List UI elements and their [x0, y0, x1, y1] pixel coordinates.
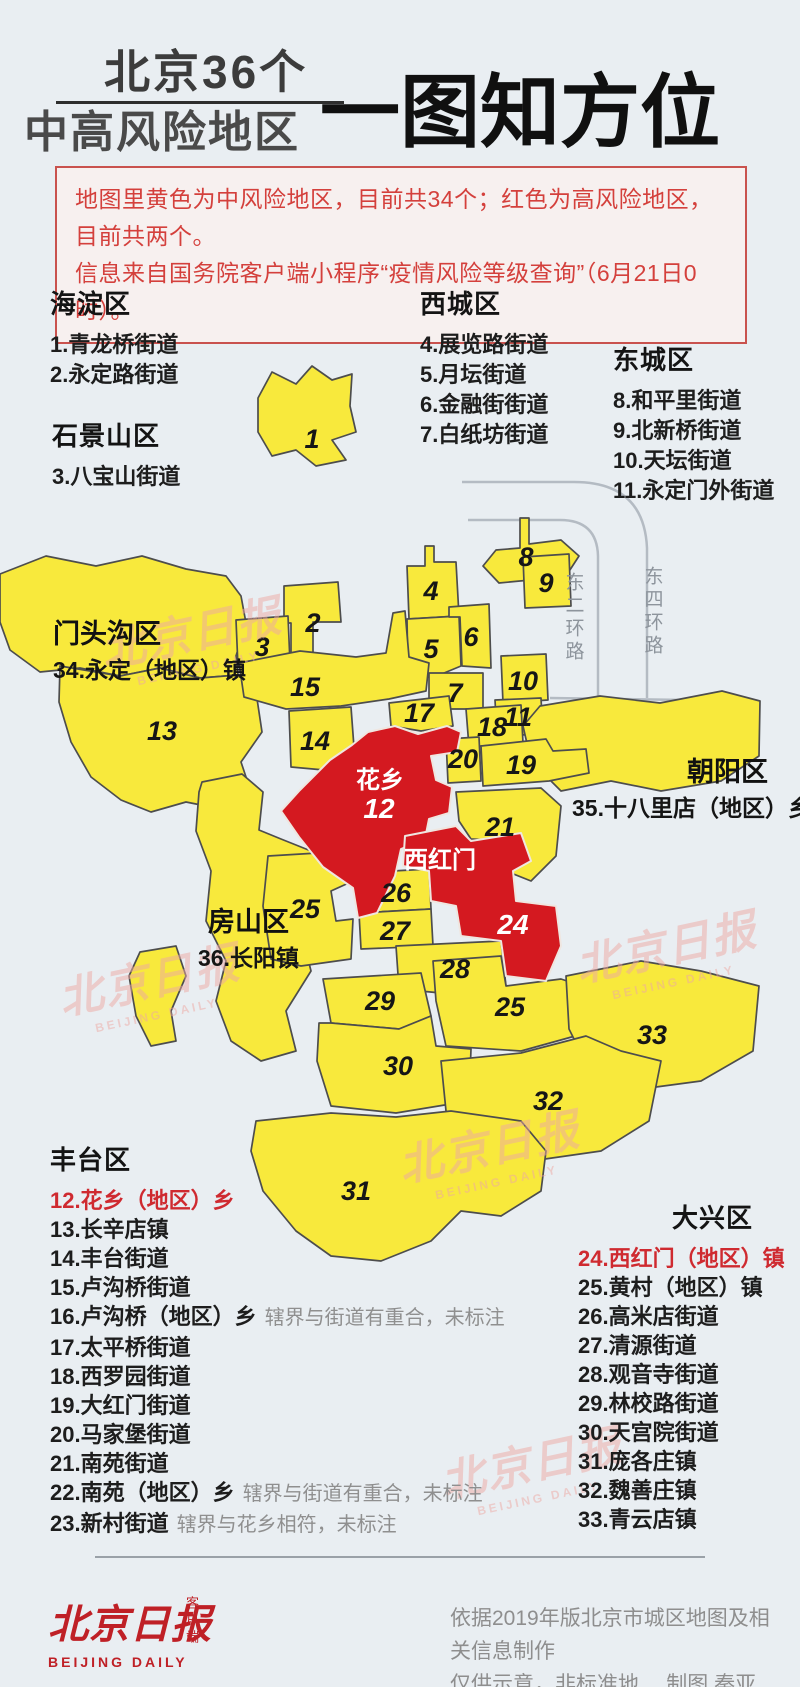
legend-item: 25.黄村（地区）镇 — [578, 1273, 785, 1302]
fangshan-item: 36.长阳镇 — [198, 939, 299, 973]
legend-item: 8.和平里街道 — [613, 386, 774, 416]
map-label-30: 30 — [383, 1051, 413, 1081]
legend-item-note: 辖界与花乡相符，未标注 — [177, 1514, 397, 1536]
legend-item: 5.月坛街道 — [420, 360, 548, 390]
map-label-15: 15 — [290, 672, 321, 702]
map-label-5: 5 — [423, 634, 439, 664]
legend-item: 19.大红门街道 — [50, 1391, 505, 1420]
road-label-east-2nd-ring: 东二环路 — [563, 572, 585, 664]
legend-item-note: 辖界与街道有重合，未标注 — [265, 1307, 505, 1329]
legend-xicheng: 西城区 4.展览路街道5.月坛街道6.金融街街道7.白纸坊街道 — [420, 284, 548, 450]
legend-item: 15.卢沟桥街道 — [50, 1273, 505, 1302]
map-label-20: 20 — [447, 744, 478, 774]
footer-credit: 依据2019年版北京市城区地图及相关信息制作 仅供示意，非标准地图。 制图 秦亚… — [450, 1602, 770, 1687]
map-label-29: 29 — [364, 986, 395, 1016]
logo-client-label: 客户端 — [182, 1596, 201, 1647]
map-label-7: 7 — [447, 678, 464, 708]
fangshan-title: 房山区 — [198, 900, 299, 939]
map-label-18: 18 — [477, 712, 507, 742]
legend-item: 33.青云店镇 — [578, 1505, 785, 1534]
legend-fengtai: 丰台区 12.花乡（地区）乡13.长辛店镇14.丰台街道15.卢沟桥街道16.卢… — [50, 1140, 505, 1540]
chaoyang-title: 朝阳区 — [572, 750, 768, 789]
legend-item: 23.新村街道辖界与花乡相符，未标注 — [50, 1509, 505, 1540]
legend-shijingshan: 石景山区 3.八宝山街道 — [52, 416, 180, 492]
legend-item: 14.丰台街道 — [50, 1244, 505, 1273]
legend-item: 2.永定路街道 — [50, 360, 178, 390]
legend-dongcheng-items: 8.和平里街道9.北新桥街道10.天坛街道11.永定门外街道 — [613, 386, 774, 506]
legend-item: 29.林校路街道 — [578, 1389, 785, 1418]
map-overlay-mentougou: 门头沟区 34.永定（地区）镇 — [53, 612, 246, 685]
legend-item-note: 辖界与街道有重合，未标注 — [243, 1483, 483, 1505]
map-label-25-south: 25 — [494, 992, 526, 1022]
poster: 北京36个 中高风险地区 一图知方位 地图里黄色为中风险地区，目前共34个；红色… — [0, 0, 800, 1687]
legend-item: 18.西罗园街道 — [50, 1362, 505, 1391]
legend-item: 17.太平桥街道 — [50, 1333, 505, 1362]
legend-item: 21.南苑街道 — [50, 1449, 505, 1478]
legend-xicheng-items: 4.展览路街道5.月坛街道6.金融街街道7.白纸坊街道 — [420, 330, 548, 450]
notice-line1: 地图里黄色为中风险地区，目前共34个；红色为高风险地区，目前共两个。 — [75, 181, 727, 255]
road-label-east-4th-ring: 东四环路 — [642, 566, 664, 658]
credit-line2: 仅供示意，非标准地图。 — [450, 1668, 666, 1687]
map-overlay-fangshan: 房山区 36.长阳镇 — [198, 900, 299, 973]
map-label-9: 9 — [538, 568, 553, 598]
legend-dongcheng: 东城区 8.和平里街道9.北新桥街道10.天坛街道11.永定门外街道 — [613, 340, 774, 506]
region-fangshan-small — [129, 946, 186, 1046]
map-overlay-chaoyang: 朝阳区 35.十八里店（地区）乡 — [572, 750, 768, 823]
legend-item: 32.魏善庄镇 — [578, 1476, 785, 1505]
district-title-shijingshan: 石景山区 — [52, 416, 180, 453]
map-label-10: 10 — [508, 666, 538, 696]
legend-item: 9.北新桥街道 — [613, 416, 774, 446]
credit-author: 制图 秦亚堙 — [666, 1668, 770, 1687]
legend-item: 22.南苑（地区）乡辖界与街道有重合，未标注 — [50, 1478, 505, 1509]
legend-item: 4.展览路街道 — [420, 330, 548, 360]
credit-line1: 依据2019年版北京市城区地图及相关信息制作 — [450, 1602, 770, 1668]
footer-divider — [95, 1556, 705, 1558]
legend-item: 26.高米店街道 — [578, 1302, 785, 1331]
map-label-14: 14 — [300, 726, 330, 756]
map-label-6: 6 — [463, 622, 479, 652]
map-label-8: 8 — [518, 542, 533, 572]
mentougou-title: 门头沟区 — [53, 612, 246, 651]
map-label-2: 2 — [304, 608, 320, 638]
legend-item: 16.卢沟桥（地区）乡辖界与街道有重合，未标注 — [50, 1302, 505, 1333]
map-label-xihongmen-num: 24 — [496, 909, 529, 940]
legend-item: 11.永定门外街道 — [613, 476, 774, 506]
legend-item: 13.长辛店镇 — [50, 1215, 505, 1244]
legend-shijingshan-items: 3.八宝山街道 — [52, 462, 180, 492]
map-label-26: 26 — [380, 878, 412, 908]
legend-item: 3.八宝山街道 — [52, 462, 180, 492]
legend-item: 27.清源街道 — [578, 1331, 785, 1360]
map-label-21: 21 — [484, 812, 515, 842]
map-label-27: 27 — [379, 916, 412, 946]
district-title-fengtai: 丰台区 — [50, 1140, 505, 1177]
map-label-huaxiang-num: 12 — [363, 793, 395, 824]
map-label-13: 13 — [147, 716, 177, 746]
map-label-32: 32 — [533, 1086, 563, 1116]
logo-english: BEIJING DAILY — [48, 1654, 212, 1670]
title-line1: 北京36个 — [104, 36, 308, 102]
legend-item: 30.天宫院街道 — [578, 1418, 785, 1447]
chaoyang-item: 35.十八里店（地区）乡 — [572, 789, 768, 823]
legend-daxing-items: 24.西红门（地区）镇25.黄村（地区）镇26.高米店街道27.清源街道28.观… — [578, 1244, 785, 1534]
legend-item: 31.庞各庄镇 — [578, 1447, 785, 1476]
map-label-huaxiang-name: 花乡 — [356, 767, 404, 794]
legend-item: 1.青龙桥街道 — [50, 330, 178, 360]
legend-item: 24.西红门（地区）镇 — [578, 1244, 785, 1273]
legend-item: 28.观音寺街道 — [578, 1360, 785, 1389]
map-label-1: 1 — [304, 424, 319, 454]
legend-haidian: 海淀区 1.青龙桥街道2.永定路街道 — [50, 284, 178, 390]
map-label-3: 3 — [254, 632, 269, 662]
district-title-daxing: 大兴区 — [672, 1198, 785, 1235]
map-label-xihongmen-name: 西红门 — [404, 846, 476, 874]
legend-item: 7.白纸坊街道 — [420, 420, 548, 450]
legend-item: 10.天坛街道 — [613, 446, 774, 476]
legend-daxing: 大兴区 24.西红门（地区）镇25.黄村（地区）镇26.高米店街道27.清源街道… — [578, 1198, 785, 1534]
district-title-haidian: 海淀区 — [50, 284, 178, 321]
legend-item: 20.马家堡街道 — [50, 1420, 505, 1449]
map-label-17: 17 — [404, 698, 436, 728]
legend-item: 6.金融街街道 — [420, 390, 548, 420]
legend-item: 12.花乡（地区）乡 — [50, 1186, 505, 1215]
map-label-4: 4 — [422, 576, 438, 606]
title-main: 一图知方位 — [320, 48, 720, 164]
map-label-11: 11 — [504, 702, 532, 732]
mentougou-item: 34.永定（地区）镇 — [53, 651, 246, 685]
district-title-xicheng: 西城区 — [420, 284, 548, 321]
district-title-dongcheng: 东城区 — [613, 340, 774, 377]
map-label-19: 19 — [506, 750, 536, 780]
legend-fengtai-items: 12.花乡（地区）乡13.长辛店镇14.丰台街道15.卢沟桥街道16.卢沟桥（地… — [50, 1186, 505, 1540]
title-line2: 中高风险地区 — [24, 96, 300, 160]
legend-haidian-items: 1.青龙桥街道2.永定路街道 — [50, 330, 178, 390]
map-label-33: 33 — [637, 1020, 667, 1050]
map-label-28: 28 — [439, 954, 470, 984]
